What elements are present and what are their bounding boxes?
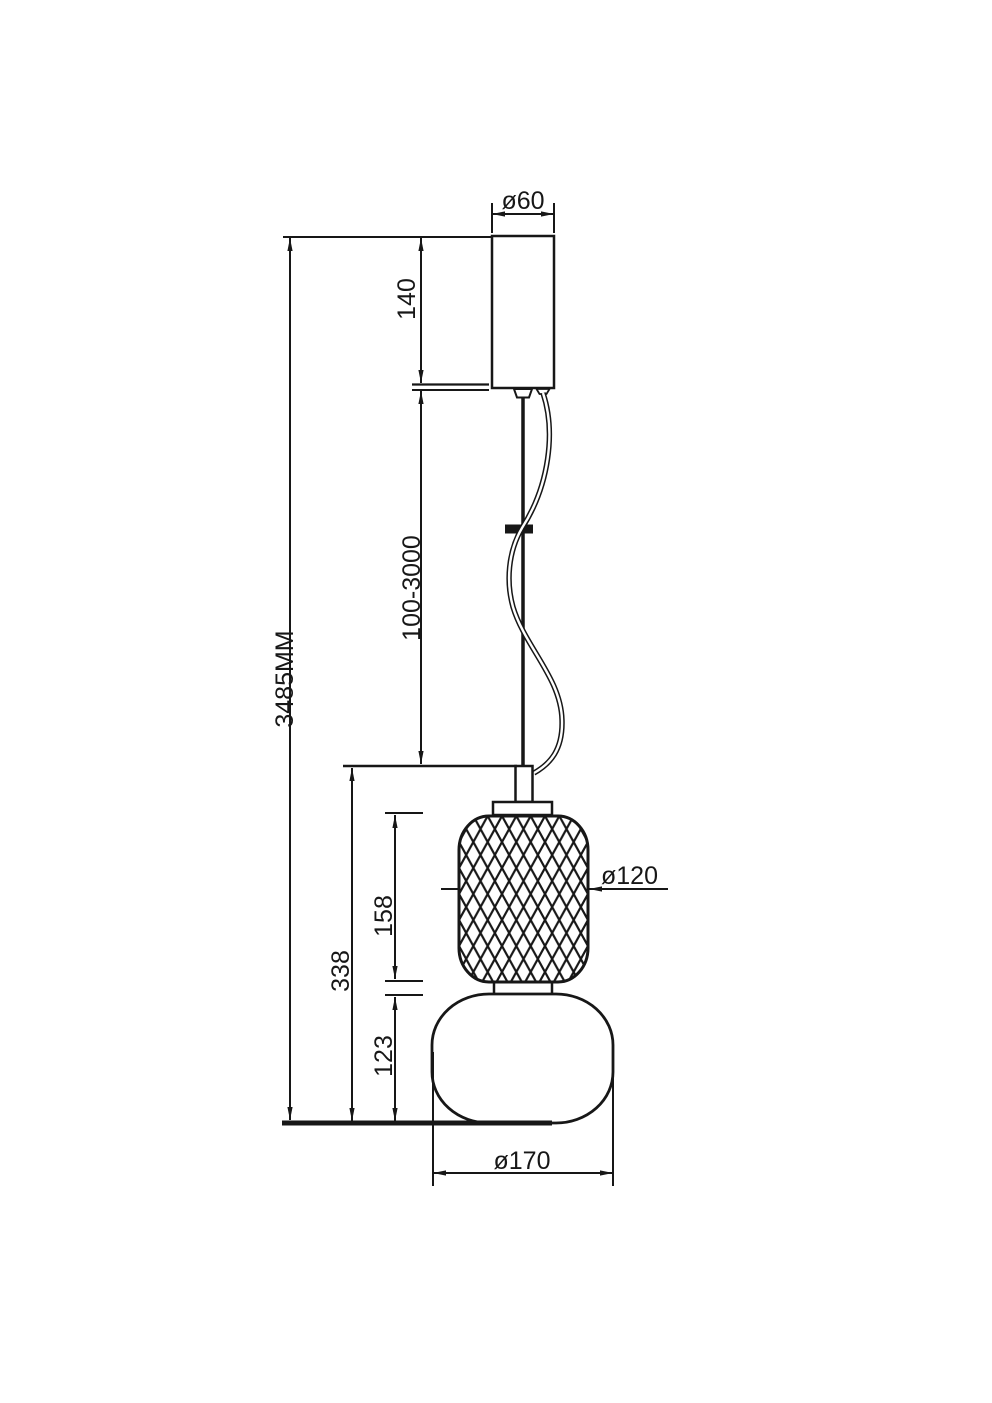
upper-shade-height-label: 158 bbox=[370, 895, 398, 937]
canopy-bottom-line bbox=[412, 385, 489, 391]
lower-shade-diameter-label: ø170 bbox=[494, 1147, 551, 1175]
upper-shade-diameter-label: ø120 bbox=[601, 862, 658, 890]
rod-connector bbox=[514, 389, 532, 398]
dim-fixture-height: 338 bbox=[327, 768, 355, 1121]
lower-shade bbox=[432, 994, 613, 1123]
upper-shade bbox=[459, 816, 588, 982]
dim-canopy-diameter: ø60 bbox=[492, 187, 554, 233]
ceiling-canopy bbox=[492, 236, 554, 388]
mesh-pattern bbox=[459, 816, 588, 982]
canopy-diameter-label: ø60 bbox=[501, 187, 544, 215]
suspension-range-label: 100-3000 bbox=[398, 535, 426, 641]
dim-suspension-range: 100-3000 bbox=[398, 391, 426, 764]
dim-lower-shade-height: 123 bbox=[370, 995, 423, 1121]
overall-height-label: 3485MM bbox=[271, 630, 299, 727]
power-cable bbox=[509, 393, 562, 773]
lamp-fixture bbox=[432, 236, 613, 1123]
dim-canopy-height: 140 bbox=[393, 238, 424, 383]
pendant-lamp-dimension-drawing: ø60 3485MM 140 100-3000 bbox=[0, 0, 992, 1403]
lamp-collar bbox=[493, 802, 552, 815]
canopy-height-label: 140 bbox=[393, 278, 421, 320]
fixture-height-label: 338 bbox=[327, 950, 355, 992]
dim-upper-shade-height: 158 bbox=[370, 813, 423, 981]
drawing-sheet: ø60 3485MM 140 100-3000 bbox=[0, 0, 992, 1403]
lower-shade-height-label: 123 bbox=[370, 1035, 398, 1077]
dim-overall-height: 3485MM bbox=[271, 238, 299, 1120]
lamp-stem bbox=[516, 766, 533, 802]
